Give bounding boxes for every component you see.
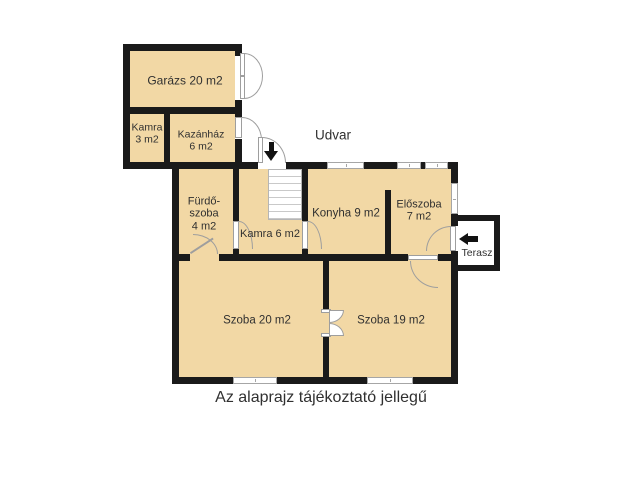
label-pantry-hall: Kamra 6 m2 [240, 228, 300, 240]
label-bathroom: Fürdő- szoba 4 m2 [188, 196, 220, 233]
hallway-room19-door-sill [408, 255, 438, 260]
label-hallway-line1: Előszoba [396, 199, 441, 211]
wall-rooms-divider-lower [323, 337, 329, 380]
label-garage: Garázs 20 m2 [147, 74, 222, 87]
wall-kitchen-hallway-divider [385, 190, 391, 261]
window-top-2 [397, 162, 421, 169]
floor-plan-canvas: Garázs 20 m2 Kamra 3 m2 Kazánház 6 m2 Ud… [0, 0, 640, 480]
wall-hall-kitchen-divider [302, 169, 308, 221]
window-right-hallway [451, 183, 458, 214]
entrance-opening [258, 162, 286, 169]
wall-row-divider-a [172, 254, 190, 261]
label-boiler-room-line2: 6 m2 [178, 141, 225, 153]
wall-main-bottom [172, 377, 458, 384]
window-top-3 [425, 162, 448, 169]
plan-caption: Az alaprajz tájékoztató jellegű [215, 389, 427, 407]
window-top-1 [327, 162, 364, 169]
wall-hall-kitchen-divider-stub [302, 249, 308, 261]
wall-row-divider-c [438, 254, 458, 261]
label-pantry-small-line2: 3 m2 [132, 134, 163, 146]
wall-row-divider-b [219, 254, 408, 261]
entrance-arrow-head-icon [264, 151, 278, 161]
label-bathroom-line1: Fürdő- [188, 196, 220, 208]
window-bottom-room19 [367, 377, 413, 384]
wall-main-left [172, 162, 179, 384]
terrace-wall-bottom [452, 265, 500, 271]
label-room19: Szoba 19 m2 [357, 315, 425, 328]
terrace-wall-right [494, 215, 500, 271]
garage-door-arc-top [244, 53, 263, 76]
terrace-arrow-head-icon [459, 233, 468, 245]
wall-bath-hall-divider [233, 169, 239, 221]
label-room20: Szoba 20 m2 [223, 315, 291, 328]
wall-garage-top [123, 44, 242, 51]
stairs [268, 169, 302, 220]
wall-bath-hall-divider-stub [233, 249, 239, 261]
label-bathroom-line3: 4 m2 [188, 220, 220, 232]
wall-rooms-divider-upper [323, 261, 329, 309]
garage-door-arc-bottom [244, 76, 263, 99]
label-hallway: Előszoba 7 m2 [396, 199, 441, 224]
wall-pantry-boiler-divider [164, 114, 170, 169]
label-hallway-line2: 7 m2 [396, 211, 441, 223]
label-pantry-small-line1: Kamra [132, 122, 163, 134]
label-boiler-room-line1: Kazánház [178, 129, 225, 141]
label-bathroom-line2: szoba [188, 208, 220, 220]
terrace-wall-top [452, 215, 500, 221]
wall-garage-bottom [123, 107, 242, 114]
label-kitchen: Konyha 9 m2 [312, 208, 380, 221]
label-pantry-small: Kamra 3 m2 [132, 122, 163, 146]
label-courtyard: Udvar [315, 127, 351, 142]
boiler-door-leaf [235, 117, 242, 138]
label-boiler-room: Kazánház 6 m2 [178, 129, 225, 153]
window-bottom-room20 [233, 377, 277, 384]
terrace-arrow-icon [468, 236, 478, 242]
label-terrace: Terasz [462, 248, 493, 260]
